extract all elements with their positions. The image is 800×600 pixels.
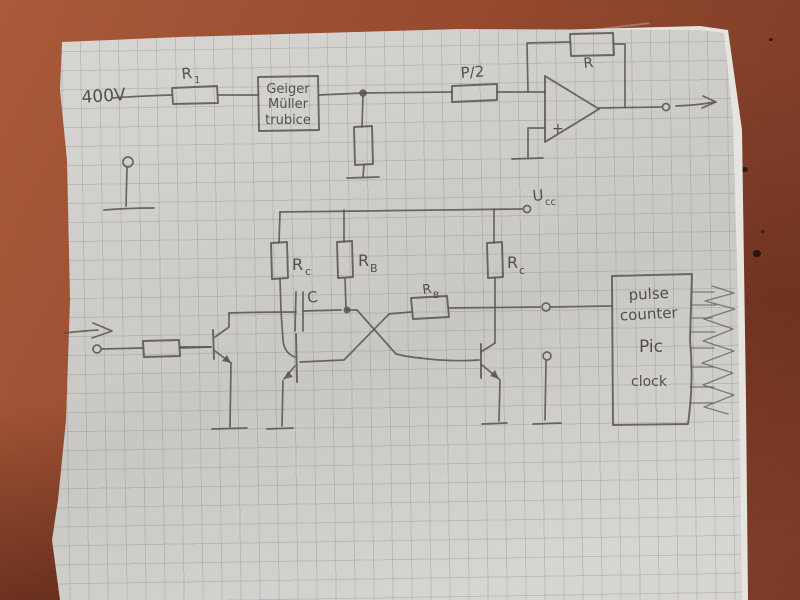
ground-bar [267, 428, 293, 429]
ground-bar [533, 423, 561, 424]
resistor-rb-mid: R B [337, 210, 378, 308]
ucc-terminal [524, 206, 531, 213]
ucc-label-sub: cc [545, 197, 556, 208]
p2-label: P/2 [460, 62, 485, 82]
wire-tube-to-p2 [319, 92, 452, 95]
rc-right-label-sub: c [519, 264, 525, 277]
emitter-arrowhead [222, 355, 231, 363]
transistor-right [481, 343, 507, 424]
ground-bar [482, 423, 507, 424]
wire-collector-left [229, 312, 296, 313]
tube-label-line3: trubice [265, 113, 311, 128]
input-terminal [93, 345, 101, 353]
resistor-rc-left: R c [271, 242, 311, 357]
hv-ground-terminal [104, 157, 154, 210]
input-resistor [143, 340, 180, 357]
ground-bar [212, 428, 247, 429]
resistor-rc-right: R c [487, 209, 525, 343]
flipflop-output-terminal [542, 303, 550, 311]
counter-label-line3: Pic [639, 337, 663, 357]
supply-rail: U cc [279, 186, 556, 243]
opamp-noninv-stub [528, 128, 545, 157]
rb-cross-label-sub: B [433, 291, 439, 301]
transistor-left [267, 334, 297, 429]
feedback-r-label: R [583, 55, 595, 72]
ucc-label: U [532, 186, 545, 205]
tube-label-line2: Müller [268, 97, 309, 112]
pulse-counter-box: pulse counter Pic clock [612, 274, 692, 425]
emitter-arrowhead [284, 371, 293, 379]
circuit-sketch: 400V R 1 Geiger Müller trubice P/2 + R [0, 0, 800, 600]
resistor-p2: P/2 [452, 62, 497, 102]
wire-cap-to-junction [303, 310, 341, 311]
opamp-plus-sign: + [552, 121, 564, 137]
ground-terminal-right [533, 352, 561, 424]
pulldown-resistor [347, 96, 379, 178]
capacitor-label: C [306, 288, 319, 307]
counter-label-line1: pulse [628, 284, 669, 304]
rb-mid-label: R [358, 251, 369, 270]
counter-output-pins [690, 286, 735, 414]
emitter-arrowhead [490, 370, 499, 379]
resistor-rb-cross: R B [411, 282, 449, 319]
opamp-ground-bar [512, 158, 543, 159]
hv-supply-label: 400V [81, 85, 127, 108]
pulse-input [64, 323, 211, 357]
cross-coupling [300, 310, 479, 362]
transistor-input [180, 313, 247, 429]
wire-output-to-counter [551, 306, 612, 307]
counter-label-line4: clock [631, 374, 668, 390]
rc-left-label-sub: c [305, 265, 311, 278]
tube-label-line1: Geiger [266, 82, 310, 97]
rb-cross-label: R [421, 282, 432, 298]
output-arrow [599, 96, 716, 111]
r1-label: R [181, 64, 193, 83]
ground-bar [347, 177, 379, 178]
output-terminal [663, 104, 670, 111]
opamp: + [512, 76, 599, 159]
supply-voltage-label: 400V [81, 85, 127, 108]
counter-label-line2: counter [619, 303, 678, 324]
rc-left-label: R [292, 255, 303, 274]
rc-right-label: R [507, 253, 518, 272]
resistor-r1: R 1 [172, 64, 218, 104]
r1-label-sub: 1 [194, 75, 200, 86]
rb-mid-label-sub: B [370, 262, 378, 275]
capacitor: C [295, 288, 319, 331]
geiger-tube-box: Geiger Müller trubice [258, 76, 319, 131]
